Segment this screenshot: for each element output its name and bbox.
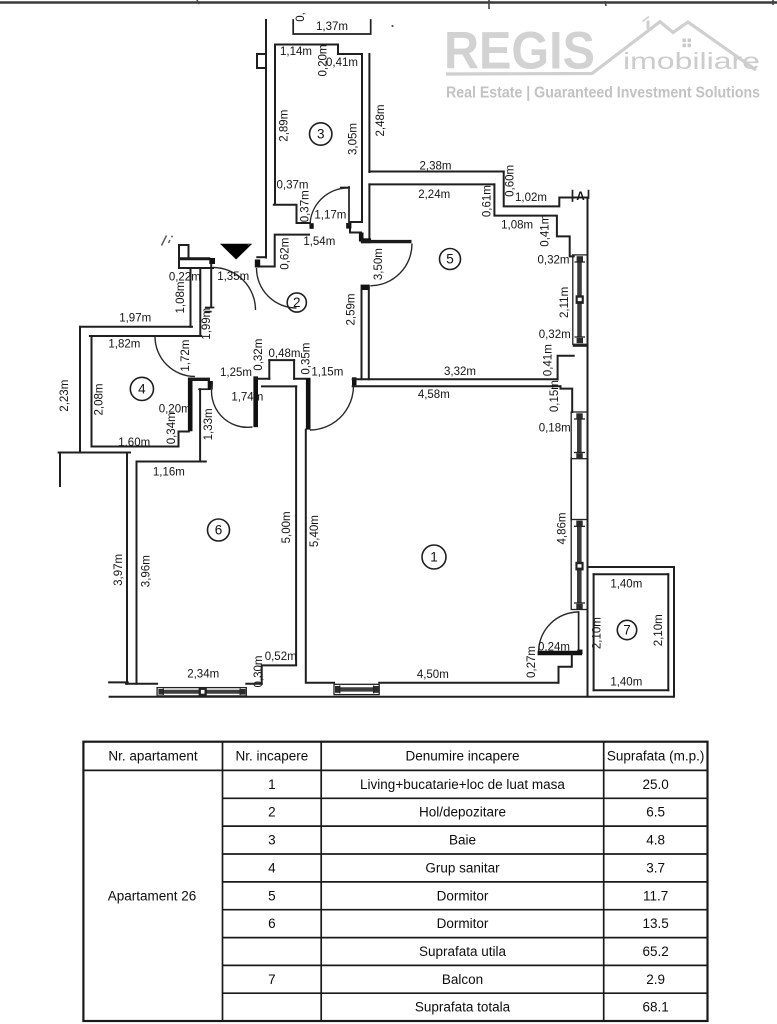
svg-text:0,22m: 0,22m (169, 271, 201, 283)
svg-text:1,40m: 1,40m (610, 676, 642, 688)
svg-text:REGIS: REGIS (444, 22, 595, 81)
svg-text:1,08m: 1,08m (501, 219, 533, 231)
svg-text:68.1: 68.1 (642, 1000, 668, 1015)
svg-text:0,61m: 0,61m (481, 185, 493, 217)
svg-text:1,40m: 1,40m (610, 579, 642, 591)
svg-text:1,17m: 1,17m (314, 210, 346, 222)
svg-text:2,11m: 2,11m (559, 287, 571, 318)
svg-text:Dormitor: Dormitor (437, 888, 489, 903)
svg-text:2.9: 2.9 (646, 972, 665, 987)
svg-text:6: 6 (215, 523, 223, 538)
svg-text:2,24m: 2,24m (418, 189, 450, 201)
svg-text:1,15m: 1,15m (311, 367, 343, 379)
svg-text:5,40m: 5,40m (309, 515, 321, 547)
svg-text:imobiliare: imobiliare (623, 48, 760, 74)
svg-text:5,00m: 5,00m (281, 511, 293, 543)
svg-text:2: 2 (268, 805, 276, 820)
svg-text:7: 7 (268, 972, 276, 987)
svg-text:2: 2 (293, 295, 301, 310)
svg-text:0,62m: 0,62m (280, 238, 292, 270)
svg-text:Dormitor: Dormitor (437, 916, 489, 931)
svg-text:2,23m: 2,23m (59, 380, 71, 412)
svg-text:0,32m: 0,32m (539, 329, 571, 341)
svg-text:0,27m: 0,27m (526, 646, 538, 678)
svg-text:1,35m: 1,35m (217, 271, 249, 283)
svg-text:1,97m: 1,97m (119, 313, 151, 325)
svg-text:1,16m: 1,16m (153, 466, 185, 478)
svg-text:25.0: 25.0 (642, 777, 668, 792)
svg-text:1,37m: 1,37m (316, 21, 348, 33)
svg-text:1: 1 (268, 777, 276, 792)
svg-text:65.2: 65.2 (642, 944, 668, 959)
svg-text:0,32m: 0,32m (538, 255, 570, 267)
svg-text:2,59m: 2,59m (346, 294, 358, 326)
svg-text:0,30m: 0,30m (253, 656, 265, 688)
svg-text:0,41m: 0,41m (539, 215, 551, 247)
svg-text:4,86m: 4,86m (557, 513, 569, 545)
svg-text:2,34m: 2,34m (187, 669, 219, 681)
svg-text:1,60m: 1,60m (118, 437, 150, 449)
svg-text:Suprafata (m.p.): Suprafata (m.p.) (607, 749, 705, 764)
svg-text:Suprafata totala: Suprafata totala (415, 1000, 511, 1015)
svg-text:0,60m: 0,60m (505, 165, 517, 197)
svg-text:3,97m: 3,97m (113, 554, 125, 586)
svg-text:0,52m: 0,52m (265, 651, 297, 663)
svg-text:0,15m: 0,15m (549, 380, 561, 412)
svg-text:2,08m: 2,08m (93, 384, 105, 416)
svg-text:4,50m: 4,50m (417, 669, 449, 681)
svg-text:2,10m: 2,10m (591, 617, 603, 649)
svg-text:3: 3 (317, 127, 325, 142)
svg-text:Real Estate | Guaranteed Inves: Real Estate | Guaranteed Investment Solu… (446, 85, 760, 102)
svg-text:Grup sanitar: Grup sanitar (425, 860, 500, 875)
svg-text:5: 5 (268, 888, 276, 903)
svg-text:3,05m: 3,05m (348, 123, 360, 155)
svg-text:3,32m: 3,32m (444, 366, 476, 378)
svg-text:Apartament 26: Apartament 26 (108, 888, 197, 903)
svg-text:3: 3 (268, 833, 276, 848)
svg-text:0,37m: 0,37m (277, 179, 309, 191)
svg-text:1,72m: 1,72m (180, 340, 192, 372)
svg-text:4,58m: 4,58m (418, 389, 450, 401)
svg-text:0,18m: 0,18m (539, 423, 571, 435)
svg-text:1: 1 (430, 550, 438, 565)
svg-text:0,37m: 0,37m (300, 190, 312, 222)
svg-text:0,41m: 0,41m (542, 344, 554, 376)
svg-text:0,32m: 0,32m (253, 339, 265, 371)
svg-text:Baie: Baie (449, 833, 476, 848)
svg-text:Balcon: Balcon (442, 972, 483, 987)
svg-text:1,74m: 1,74m (231, 392, 263, 404)
svg-text:11.7: 11.7 (643, 888, 668, 903)
svg-text:0,41m: 0,41m (326, 57, 358, 69)
svg-text:1,02m: 1,02m (515, 192, 547, 204)
svg-text:1,54m: 1,54m (303, 236, 335, 248)
svg-text:1,99m: 1,99m (201, 308, 213, 340)
svg-text:4: 4 (268, 860, 276, 875)
svg-text:Nr. incapere: Nr. incapere (236, 749, 309, 764)
svg-text:0,: 0, (295, 12, 307, 22)
svg-text:0,24m: 0,24m (538, 642, 570, 654)
svg-text:6.5: 6.5 (646, 805, 665, 820)
svg-text:4.8: 4.8 (646, 833, 665, 848)
svg-text:1,25m: 1,25m (220, 367, 252, 379)
svg-text:2,48m: 2,48m (375, 105, 387, 137)
svg-text:Denumire incapere: Denumire incapere (405, 749, 519, 764)
svg-text:0,34m: 0,34m (166, 412, 178, 444)
svg-text:2,89m: 2,89m (278, 110, 290, 142)
svg-text:1,08m: 1,08m (175, 282, 187, 314)
svg-text:3,96m: 3,96m (140, 555, 152, 587)
svg-text:Living+bucatarie+loc de luat m: Living+bucatarie+loc de luat masa (360, 777, 565, 792)
svg-text:2,38m: 2,38m (420, 161, 452, 173)
svg-text:5: 5 (446, 252, 454, 267)
svg-text:4: 4 (138, 382, 146, 397)
svg-text:1,33m: 1,33m (203, 408, 215, 440)
svg-text:A: A (576, 191, 584, 203)
svg-text:6: 6 (268, 916, 276, 931)
svg-text:1,82m: 1,82m (108, 338, 140, 350)
svg-text:Suprafata utila: Suprafata utila (419, 944, 507, 959)
svg-text:3.7: 3.7 (646, 860, 665, 875)
svg-text:0,48m: 0,48m (269, 348, 301, 360)
svg-text:2,10m: 2,10m (653, 614, 665, 646)
svg-text:Hol/depozitare: Hol/depozitare (419, 805, 506, 820)
svg-text:Nr. apartament: Nr. apartament (108, 749, 198, 764)
svg-text:13.5: 13.5 (642, 916, 668, 931)
svg-text:3,50m: 3,50m (373, 248, 385, 280)
svg-text:7: 7 (623, 623, 631, 638)
svg-text:1,14m: 1,14m (280, 46, 312, 58)
